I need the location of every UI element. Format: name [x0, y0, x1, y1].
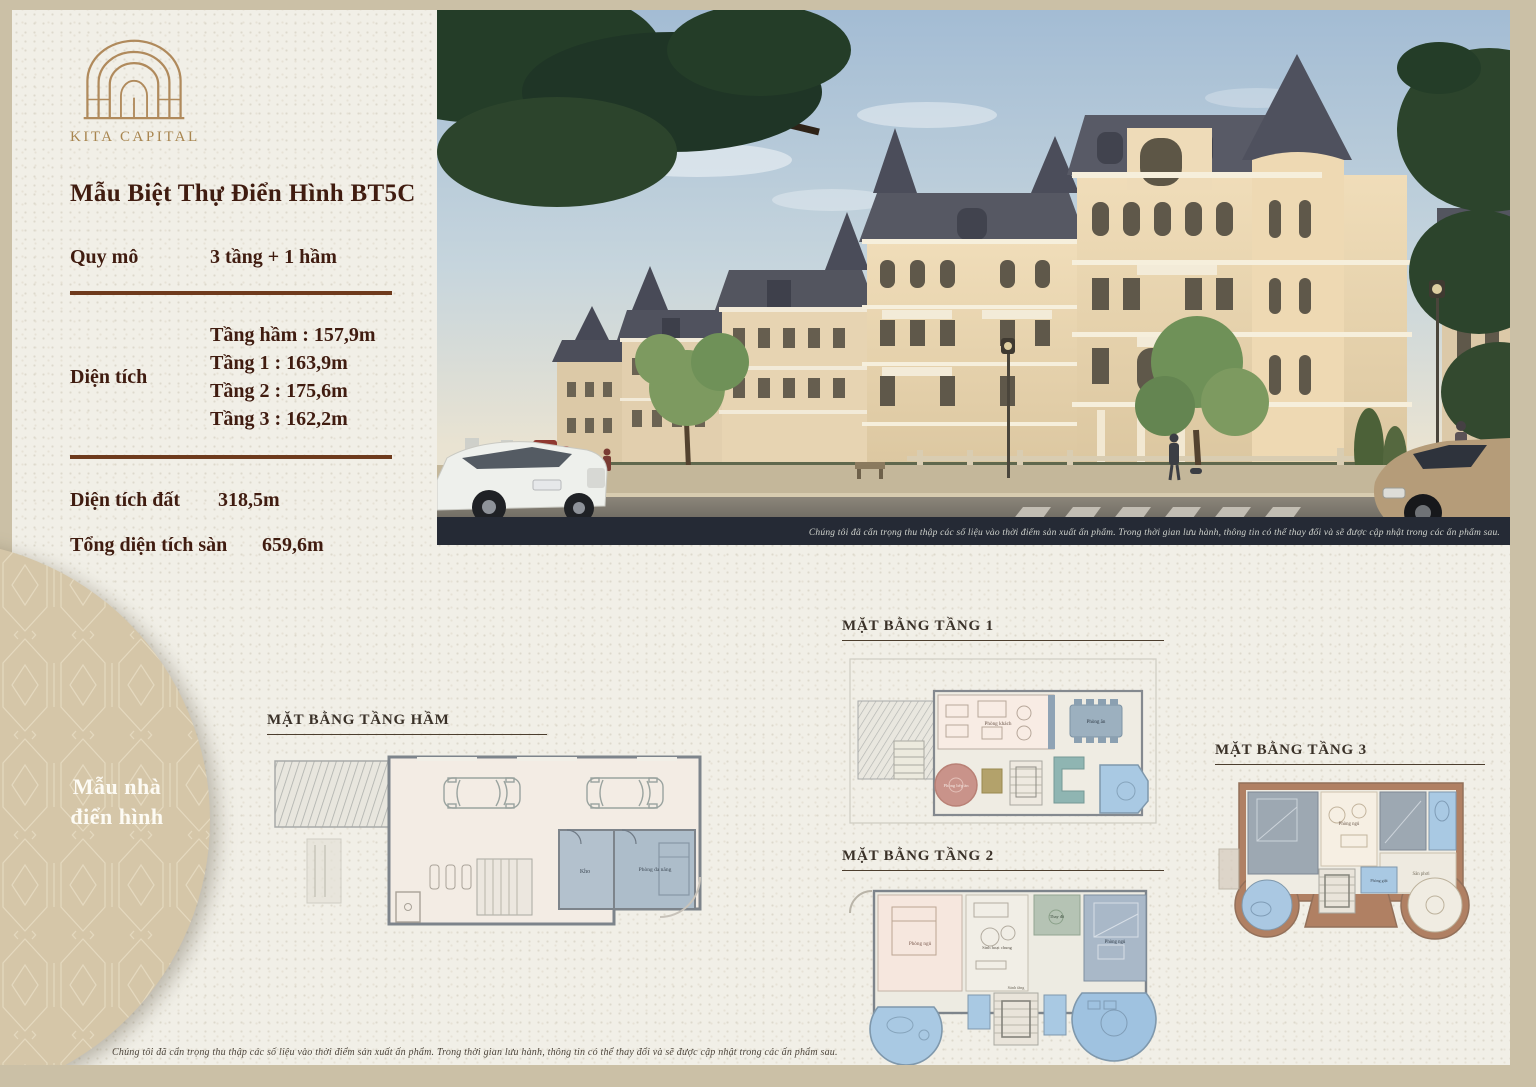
spec-value-line: Tầng 2 : 175,6m	[210, 377, 440, 405]
badge-line1: Mẫu nhà	[28, 772, 206, 802]
entry-stairs	[894, 741, 924, 779]
spec-value-line: Tầng 1 : 163,9m	[210, 349, 440, 377]
bath-bay	[1100, 765, 1148, 813]
plan-floor2-title: MẶT BẰNG TẦNG 2	[842, 848, 1164, 871]
brand-logo: KITA CAPITAL	[70, 38, 198, 146]
svg-text:Phòng ngủ: Phòng ngủ	[1105, 940, 1126, 945]
badge-line2: điển hình	[28, 802, 206, 832]
brochure-page: KITA CAPITAL Mẫu Biệt Thự Điển Hình BT5C…	[0, 0, 1536, 1087]
bath-bay-right	[1072, 993, 1156, 1061]
spec-value: 659,6m	[262, 534, 440, 557]
spec-value-line: Tầng hầm : 157,9m	[210, 321, 440, 349]
bath-bay-left	[870, 1007, 942, 1065]
arch-logo-icon	[77, 38, 191, 120]
spec-label: Diện tích đất	[70, 489, 218, 512]
stairs	[477, 859, 532, 915]
floor2-body: Phòng ngủ Sinh hoạt chung Thay đồ Phòng …	[850, 891, 1156, 1065]
right-frame-strip	[1510, 0, 1536, 1087]
svg-text:Phòng đa năng: Phòng đa năng	[639, 867, 672, 873]
svg-text:Phòng khách: Phòng khách	[985, 721, 1012, 727]
svg-text:Sân phơi: Sân phơi	[1412, 872, 1430, 877]
page-title: Mẫu Biệt Thự Điển Hình BT5C	[70, 180, 440, 208]
plan-floor1-title: MẶT BẰNG TẦNG 1	[842, 618, 1164, 641]
svg-text:Thay đồ: Thay đồ	[1050, 914, 1065, 919]
spec-row-dientich: Diện tích Tầng hầm : 157,9m Tầng 1 : 163…	[70, 321, 440, 433]
stair-core	[994, 993, 1038, 1045]
bath-small	[1044, 995, 1066, 1035]
villa-rendering	[437, 10, 1510, 545]
plan-floor2: MẶT BẰNG TẦNG 2	[842, 848, 1164, 1058]
svg-text:Phòng ngủ: Phòng ngủ	[1339, 822, 1360, 827]
stair-core	[1319, 869, 1355, 913]
footer-disclaimer: Chúng tôi đã cẩn trọng thu thập các số l…	[112, 1047, 838, 1058]
spec-value-line: Tầng 3 : 162,2m	[210, 405, 440, 433]
bottom-frame-strip	[0, 1065, 1536, 1087]
svg-text:Sảnh tầng: Sảnh tầng	[1008, 985, 1026, 990]
info-panel: KITA CAPITAL Mẫu Biệt Thự Điển Hình BT5C…	[32, 38, 440, 557]
floor3-rooms: Phòng ngủ Phòng giặt Sân phơi	[1242, 790, 1462, 932]
plan-floor1-drawing: Phòng khách Phòng ăn Phòng bếp ăn	[842, 653, 1164, 831]
badge-label: Mẫu nhà điển hình	[28, 772, 206, 832]
svg-text:Sinh hoạt chung: Sinh hoạt chung	[982, 945, 1013, 950]
spec-row-quymo: Quy mô 3 tầng + 1 hầm	[70, 246, 440, 269]
plan-floor3: MẶT BẰNG TẦNG 3	[1215, 742, 1485, 949]
plan-floor3-drawing: Phòng ngủ Phòng giặt Sân phơi	[1215, 777, 1485, 949]
plan-floor3-title: MẶT BẰNG TẦNG 3	[1215, 742, 1485, 765]
villa-photo: Chúng tôi đã cẩn trọng thu thập các số l…	[437, 10, 1510, 545]
plan-basement: MẶT BẰNG TẦNG HẦM	[267, 712, 547, 1037]
plan-basement-drawing: Kho Phòng đa năng	[267, 747, 722, 1037]
svg-text:Phòng bếp ăn: Phòng bếp ăn	[943, 783, 969, 788]
wc	[968, 995, 990, 1029]
paper-area: KITA CAPITAL Mẫu Biệt Thự Điển Hình BT5C…	[12, 10, 1510, 1065]
divider-line	[70, 455, 392, 459]
svg-text:Phòng ngủ: Phòng ngủ	[909, 941, 932, 947]
svg-text:Phòng giặt: Phòng giặt	[1370, 878, 1388, 883]
stair-core	[1010, 761, 1042, 805]
svg-text:Phòng ăn: Phòng ăn	[1087, 720, 1106, 725]
spec-value: 3 tầng + 1 hầm	[210, 246, 440, 269]
spec-label: Diện tích	[70, 366, 210, 389]
plan-floor2-drawing: Phòng ngủ Sinh hoạt chung Thay đồ Phòng …	[842, 883, 1164, 1058]
photo-disclaimer: Chúng tôi đã cẩn trọng thu thập các số l…	[809, 528, 1500, 538]
brand-name: KITA CAPITAL	[70, 129, 198, 146]
divider-line	[70, 291, 392, 295]
basement-rooms: Kho Phòng đa năng	[559, 830, 700, 917]
spec-label: Quy mô	[70, 246, 210, 269]
spec-value: 318,5m	[218, 489, 440, 512]
spec-row-dat: Diện tích đất 318,5m	[70, 489, 440, 512]
plan-floor1: MẶT BẰNG TẦNG 1	[842, 618, 1164, 831]
floor1-body: Phòng khách Phòng ăn Phòng bếp ăn	[934, 691, 1148, 815]
svg-text:Kho: Kho	[580, 869, 590, 875]
spec-values: Tầng hầm : 157,9m Tầng 1 : 163,9m Tầng 2…	[210, 321, 440, 433]
plan-basement-title: MẶT BẰNG TẦNG HẦM	[267, 712, 547, 735]
